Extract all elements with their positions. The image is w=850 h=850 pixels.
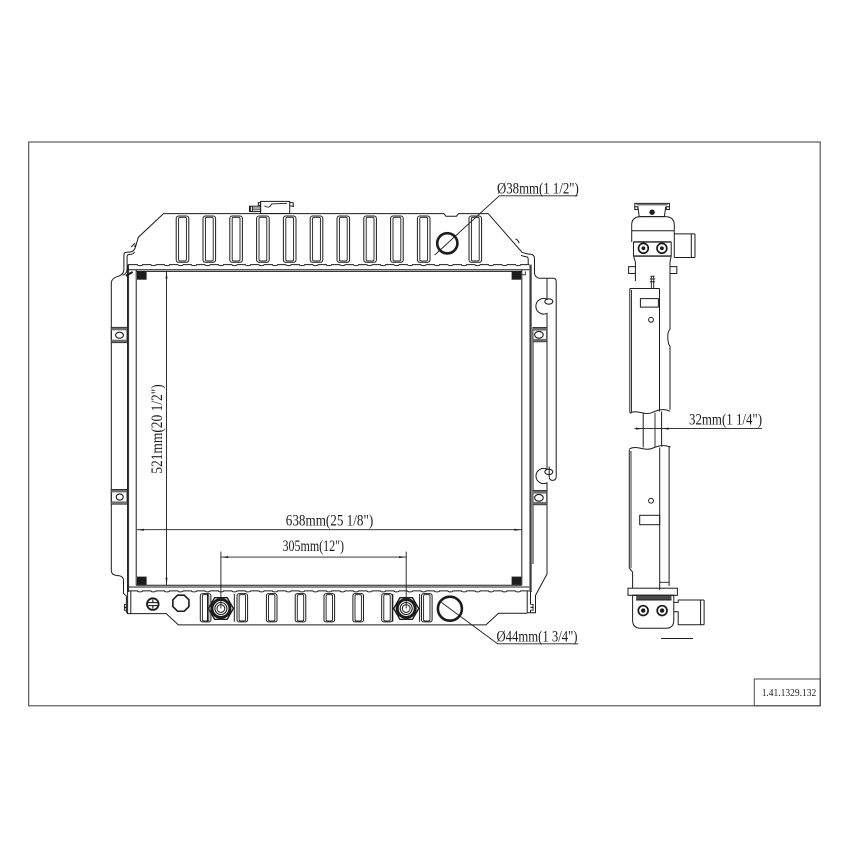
svg-text:1.41.1329.132: 1.41.1329.132 bbox=[762, 687, 817, 699]
svg-text:638mm(25 1/8"): 638mm(25 1/8") bbox=[286, 513, 373, 530]
svg-text:521mm(20 1/2"): 521mm(20 1/2") bbox=[149, 384, 166, 474]
svg-text:305mm(12"): 305mm(12") bbox=[283, 538, 345, 555]
svg-text:Ø44mm(1 3/4"): Ø44mm(1 3/4") bbox=[497, 629, 578, 646]
svg-text:32mm(1 1/4"): 32mm(1 1/4") bbox=[689, 412, 762, 429]
svg-text:Ø38mm(1 1/2"): Ø38mm(1 1/2") bbox=[497, 181, 579, 198]
